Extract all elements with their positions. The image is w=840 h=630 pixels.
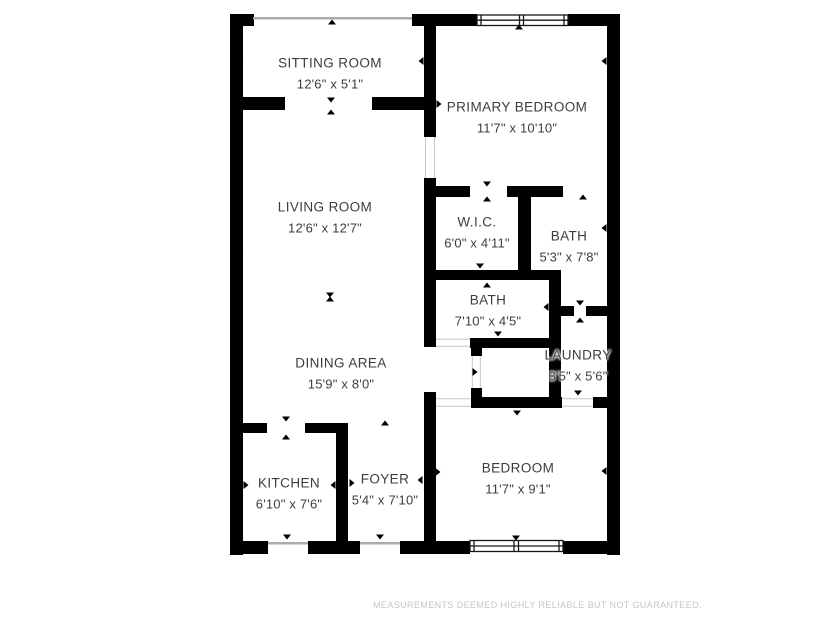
wall [230, 14, 243, 555]
wall [412, 14, 477, 26]
room-label-bath-2: BATH 7'10" x 4'5" [455, 291, 521, 332]
room-dims: 6'0" x 4'11" [444, 233, 510, 254]
room-label-bedroom: BEDROOM 11'7" x 9'1" [482, 459, 555, 500]
wall [424, 178, 436, 347]
screen-opening [360, 542, 400, 545]
opening-lines [253, 17, 412, 545]
opening-marker-icon [576, 318, 584, 323]
opening-marker-icon [512, 536, 520, 541]
wall [561, 306, 574, 316]
window [470, 541, 563, 552]
wall [436, 186, 470, 197]
wall [424, 270, 549, 280]
room-label-bath-1: BATH 5'3" x 7'8" [539, 227, 598, 268]
wall [230, 423, 267, 433]
wall [424, 392, 436, 554]
wall [518, 197, 531, 270]
opening-marker-icon [376, 535, 384, 540]
wall [593, 397, 607, 408]
screen-opening [253, 17, 412, 20]
wall [471, 338, 482, 356]
room-dims: 11'7" x 10'10" [447, 118, 588, 139]
opening-marker-icon [579, 195, 587, 200]
room-label-dining-area: DINING AREA 15'9" x 8'0" [295, 354, 386, 395]
room-dims: 12'6" x 12'7" [278, 218, 372, 239]
wall [563, 541, 620, 554]
floorplan-drawing [0, 0, 840, 630]
room-label-kitchen: KITCHEN 6'10" x 7'6" [256, 474, 322, 515]
room-name: KITCHEN [256, 474, 322, 494]
opening-marker-icon [282, 417, 290, 422]
opening-marker-icon [418, 476, 423, 484]
wall [336, 423, 348, 554]
opening-marker-icon [327, 98, 335, 103]
room-dims: 5'3" x 7'8" [539, 247, 598, 268]
room-name: BATH [455, 291, 521, 311]
screen-opening [268, 542, 308, 545]
wall [471, 397, 562, 408]
room-name: PRIMARY BEDROOM [447, 98, 588, 118]
door-opening [436, 339, 470, 346]
opening-marker-icon [331, 481, 336, 489]
room-name: BEDROOM [482, 459, 555, 479]
wall [230, 541, 268, 554]
opening-marker-icon [544, 303, 549, 311]
wall [230, 97, 285, 110]
door-opening [426, 137, 435, 178]
opening-marker-icon [513, 411, 521, 416]
room-label-foyer: FOYER 5'4" x 7'10" [352, 470, 418, 511]
opening-marker-icon [576, 301, 584, 306]
room-label-wic: W.I.C. 6'0" x 4'11" [444, 213, 510, 254]
opening-marker-icon [574, 391, 582, 396]
opening-marker-icon [483, 197, 491, 202]
disclaimer-text: MEASUREMENTS DEEMED HIGHLY RELIABLE BUT … [373, 600, 613, 610]
opening-marker-icon [436, 468, 441, 476]
window [477, 15, 568, 26]
room-dims: 3'5" x 5'6" [544, 366, 611, 387]
room-name: FOYER [352, 470, 418, 490]
opening-marker-icon [282, 435, 290, 440]
room-name: LIVING ROOM [278, 198, 372, 218]
room-name: LAUNDRY [544, 346, 611, 366]
wall [230, 14, 254, 26]
wall [607, 14, 620, 555]
center-marker-icon [326, 297, 334, 302]
room-dims: 12'6" x 5'1" [278, 74, 382, 95]
opening-marker-icon [483, 182, 491, 187]
wall [424, 14, 436, 137]
opening-marker-icon [473, 368, 478, 376]
opening-marker-icon [381, 421, 389, 426]
floorplan-page: SITTING ROOM 12'6" x 5'1" PRIMARY BEDROO… [0, 0, 840, 630]
opening-marker-icon [244, 481, 249, 489]
room-label-primary-bedroom: PRIMARY BEDROOM 11'7" x 10'10" [447, 98, 588, 139]
door-opening [436, 399, 471, 407]
room-label-laundry: LAUNDRY 3'5" x 5'6" [544, 346, 611, 387]
opening-marker-icon [437, 100, 442, 108]
opening-marker-icon [602, 224, 607, 232]
room-label-living-room: LIVING ROOM 12'6" x 12'7" [278, 198, 372, 239]
room-label-sitting-room: SITTING ROOM 12'6" x 5'1" [278, 54, 382, 95]
room-dims: 15'9" x 8'0" [295, 374, 386, 395]
room-dims: 5'4" x 7'10" [352, 490, 418, 511]
opening-marker-icon [327, 110, 335, 115]
opening-marker-icon [483, 283, 491, 288]
wall [586, 306, 607, 316]
door-opening [562, 399, 593, 407]
room-dims: 7'10" x 4'5" [455, 311, 521, 332]
room-name: W.I.C. [444, 213, 510, 233]
room-name: BATH [539, 227, 598, 247]
room-dims: 11'7" x 9'1" [482, 479, 555, 500]
wall [568, 14, 620, 26]
opening-marker-icon [328, 20, 336, 25]
wall [507, 186, 563, 197]
opening-marker-icon [602, 467, 607, 475]
opening-marker-icon [494, 332, 502, 337]
opening-marker-icon [419, 57, 424, 65]
room-name: DINING AREA [295, 354, 386, 374]
wall [308, 541, 360, 554]
room-dims: 6'10" x 7'6" [256, 494, 322, 515]
opening-marker-icon [602, 57, 607, 65]
room-name: SITTING ROOM [278, 54, 382, 74]
opening-marker-icon [476, 264, 484, 269]
opening-marker-icon [283, 535, 291, 540]
